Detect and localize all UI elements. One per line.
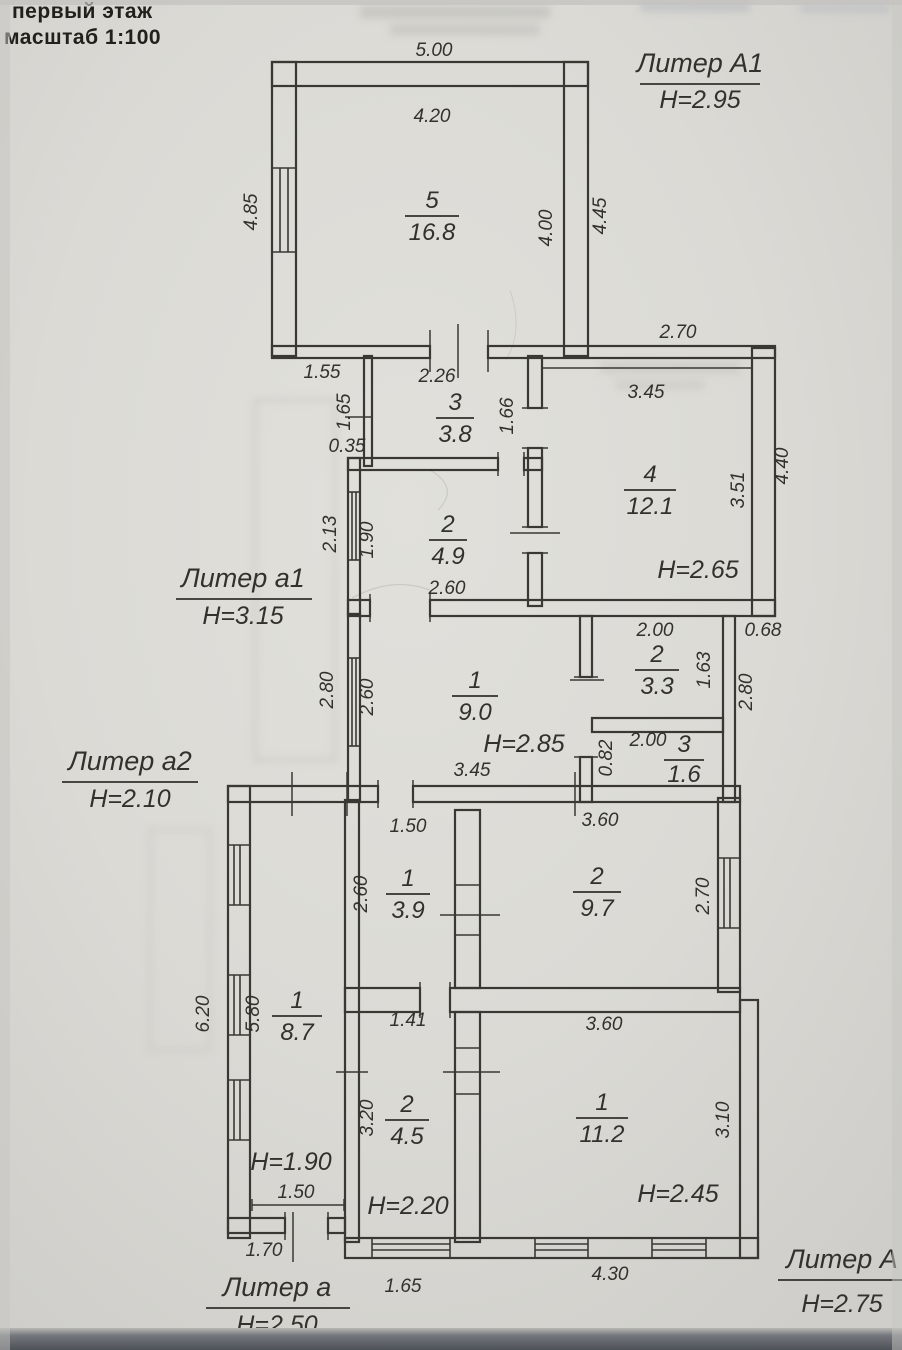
dim-room2t-width: 2.60 (428, 578, 466, 599)
dim-room2b-width: 3.60 (582, 810, 619, 831)
room-5-area: 16.8 (409, 219, 456, 246)
room-1bb-height: Н=2.45 (637, 1180, 718, 1208)
dim-column-inner-height: 5.80 (243, 995, 264, 1032)
dim-room2b-height: 2.70 (693, 877, 714, 915)
room-2m-number: 2 (649, 641, 663, 668)
dim-room2bb-width: 1.41 (390, 1010, 427, 1031)
dim-setback: 1.55 (304, 362, 341, 383)
page-title-line2: масштаб 1:100 (4, 26, 161, 49)
room-1bb-number: 1 (595, 1089, 608, 1116)
dim-room2bb-height: 3.20 (357, 1099, 378, 1136)
room-2t-number: 2 (440, 511, 454, 538)
paper-background (0, 0, 902, 1350)
room-3m-area: 1.6 (667, 761, 701, 788)
room-1c-number: 1 (290, 987, 303, 1014)
dim-offset: 0.35 (329, 436, 366, 457)
liter-a1-height: Н=3.15 (202, 602, 283, 630)
room-2bb-height: Н=2.20 (367, 1192, 448, 1220)
dim-column-bottom-inner: 1.50 (278, 1182, 315, 1203)
dim-room5-inner-height: 4.00 (536, 209, 557, 246)
dim-room1m-inner-height: 2.60 (357, 678, 378, 716)
dim-room2m-height: 1.63 (694, 651, 715, 688)
dim-room5-inner-width: 4.20 (414, 106, 451, 127)
scanned-floor-plan-page: первый этаж масштаб 1:100 Литер А1 Н=2.9… (0, 0, 902, 1350)
room-3m-number: 3 (677, 731, 691, 758)
dim-room1m-width: 3.45 (454, 760, 491, 781)
room-2b-area: 9.7 (580, 895, 615, 922)
dim-room4-width: 3.45 (628, 382, 665, 403)
room-1m-area: 9.0 (458, 699, 492, 726)
dim-room4-inner-height: 3.51 (728, 472, 749, 509)
dim-room3m-height: 0.82 (596, 739, 617, 776)
liter-A-height: Н=2.75 (801, 1290, 882, 1318)
room-4-area: 12.1 (627, 493, 674, 520)
dim-room2t-outer-height: 2.13 (320, 515, 341, 553)
dim-room5-outer-height: 4.85 (241, 193, 262, 230)
dim-east-height: 2.80 (736, 673, 757, 711)
dim-column-bottom-outer: 1.70 (246, 1240, 283, 1261)
floor-plan-svg: первый этаж масштаб 1:100 Литер А1 Н=2.9… (0, 0, 902, 1350)
room-1b-number: 1 (401, 865, 414, 892)
room-5-number: 5 (425, 187, 439, 214)
dim-room5-right-outer-height: 4.45 (590, 197, 611, 234)
room-1m-height: Н=2.85 (483, 730, 564, 758)
liter-a2-height: Н=2.10 (89, 785, 170, 813)
dim-room1bb-height: 3.10 (713, 1101, 734, 1138)
dim-room1b-height: 2.60 (351, 875, 372, 913)
dim-ne-top: 2.70 (659, 322, 697, 343)
room-1c-height: Н=1.90 (250, 1148, 331, 1176)
dim-room5-outer-width: 5.00 (416, 40, 453, 61)
dim-room3m-width: 2.00 (629, 730, 667, 751)
room-3t-area: 3.8 (438, 421, 472, 448)
room-2m-area: 3.3 (640, 673, 674, 700)
dim-bottom-left: 1.65 (385, 1276, 422, 1297)
room-1b-area: 3.9 (391, 897, 424, 924)
dim-room2m-width: 2.00 (636, 620, 674, 641)
room-2bb-number: 2 (399, 1091, 413, 1118)
liter-a1-name: Литер а1 (179, 563, 305, 593)
room-1m-number: 1 (468, 667, 481, 694)
room-2t-area: 4.9 (431, 543, 464, 570)
room-1bb-area: 11.2 (580, 1121, 625, 1148)
liter-a-name: Литер а (221, 1272, 332, 1302)
dim-room3t-left-height: 1.65 (334, 393, 355, 430)
dim-room2t-inner-height: 1.90 (357, 521, 378, 558)
liter-A1-name: Литер А1 (635, 48, 764, 78)
liter-a2-name: Литер а2 (66, 746, 192, 776)
room-1c-area: 8.7 (280, 1019, 315, 1046)
dim-bottom-right: 4.30 (592, 1264, 629, 1285)
liter-A-name: Литер А (784, 1244, 898, 1274)
dim-east-offset: 0.68 (745, 620, 782, 641)
room-3t-number: 3 (448, 389, 462, 416)
room-2bb-area: 4.5 (390, 1123, 424, 1150)
dim-column-outer-height: 6.20 (193, 995, 214, 1032)
liter-A1-height: Н=2.95 (659, 86, 740, 114)
room-4-height: Н=2.65 (657, 556, 738, 584)
room-2b-number: 2 (589, 863, 603, 890)
room-4-number: 4 (643, 461, 656, 488)
dim-room1m-outer-height: 2.80 (317, 671, 338, 709)
dim-room4-outer-height: 4.40 (772, 447, 793, 484)
dim-room1bb-width: 3.60 (586, 1014, 623, 1035)
dim-room3t-width: 2.26 (418, 366, 456, 387)
dim-room3t-right-height: 1.66 (497, 397, 518, 434)
dim-room1b-width: 1.50 (390, 816, 427, 837)
